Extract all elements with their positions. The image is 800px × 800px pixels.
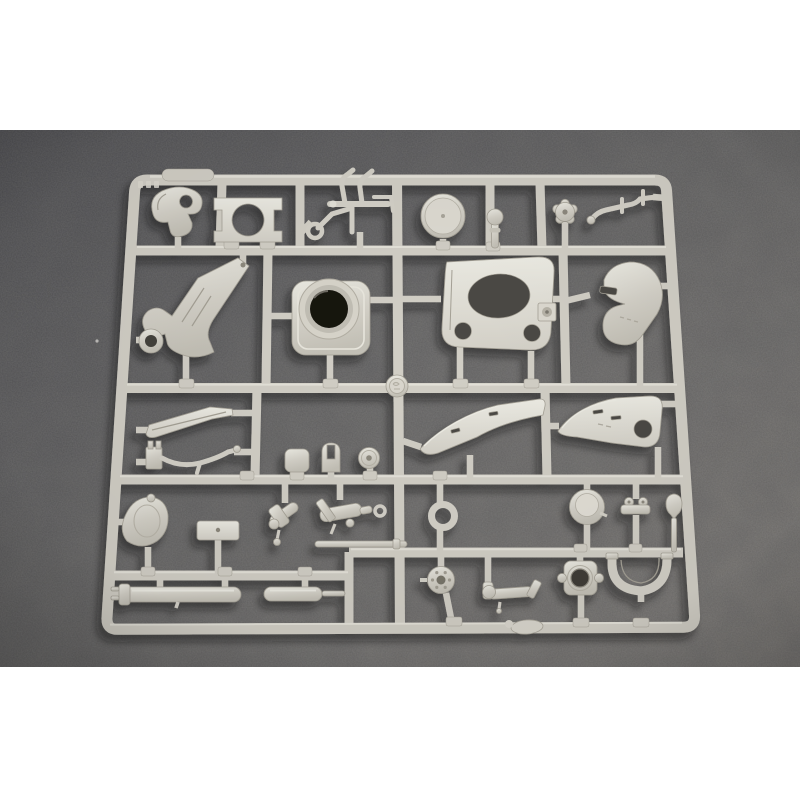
photo-vignette bbox=[0, 130, 800, 667]
product-photo-page bbox=[0, 0, 800, 800]
photo-area bbox=[0, 130, 800, 667]
photo-canvas bbox=[0, 0, 800, 800]
